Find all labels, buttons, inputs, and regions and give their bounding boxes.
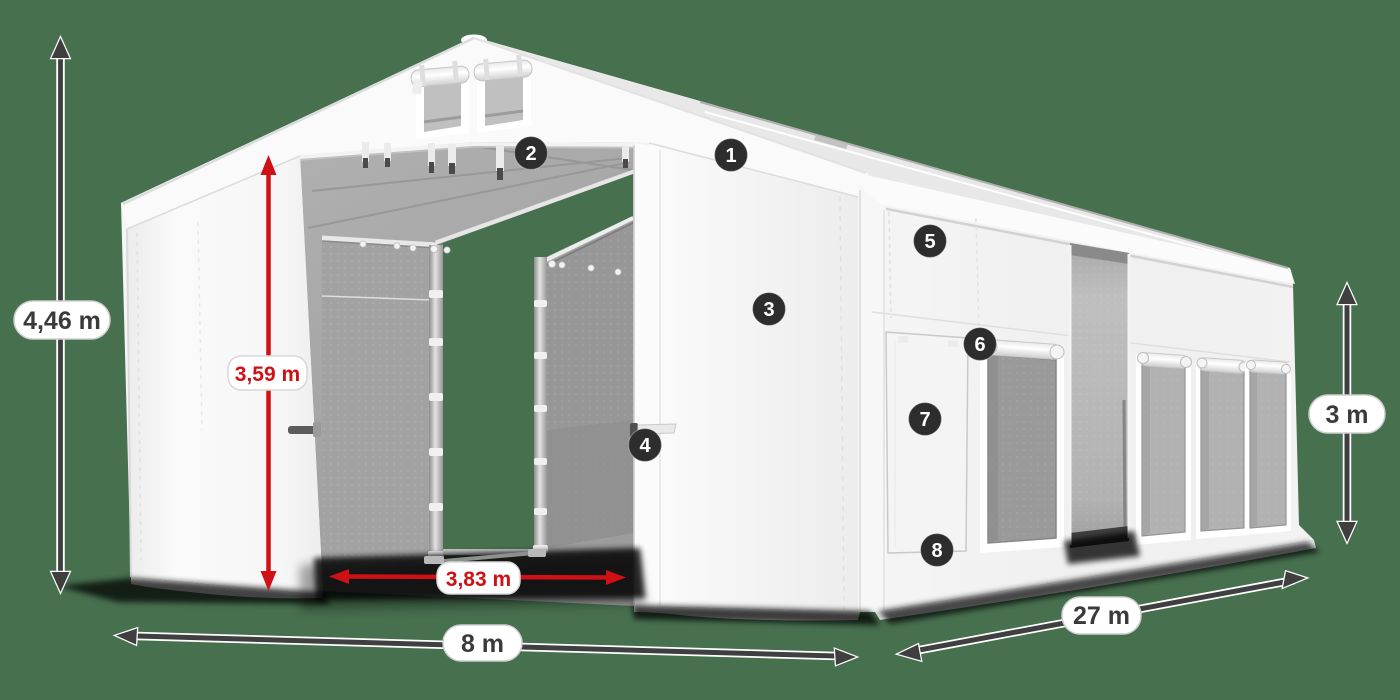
svg-text:5: 5: [924, 231, 935, 253]
svg-text:4: 4: [639, 435, 651, 457]
svg-text:6: 6: [974, 334, 985, 356]
svg-text:2: 2: [525, 143, 536, 165]
svg-text:8: 8: [931, 540, 942, 562]
svg-text:3,83 m: 3,83 m: [446, 568, 511, 591]
svg-text:3: 3: [763, 299, 774, 321]
svg-text:27 m: 27 m: [1073, 602, 1130, 630]
svg-text:8 m: 8 m: [461, 630, 504, 658]
svg-text:3,59 m: 3,59 m: [235, 363, 300, 386]
svg-text:1: 1: [725, 145, 736, 167]
svg-text:4,46 m: 4,46 m: [23, 307, 101, 335]
svg-text:3 m: 3 m: [1325, 401, 1368, 429]
svg-text:7: 7: [919, 409, 930, 431]
